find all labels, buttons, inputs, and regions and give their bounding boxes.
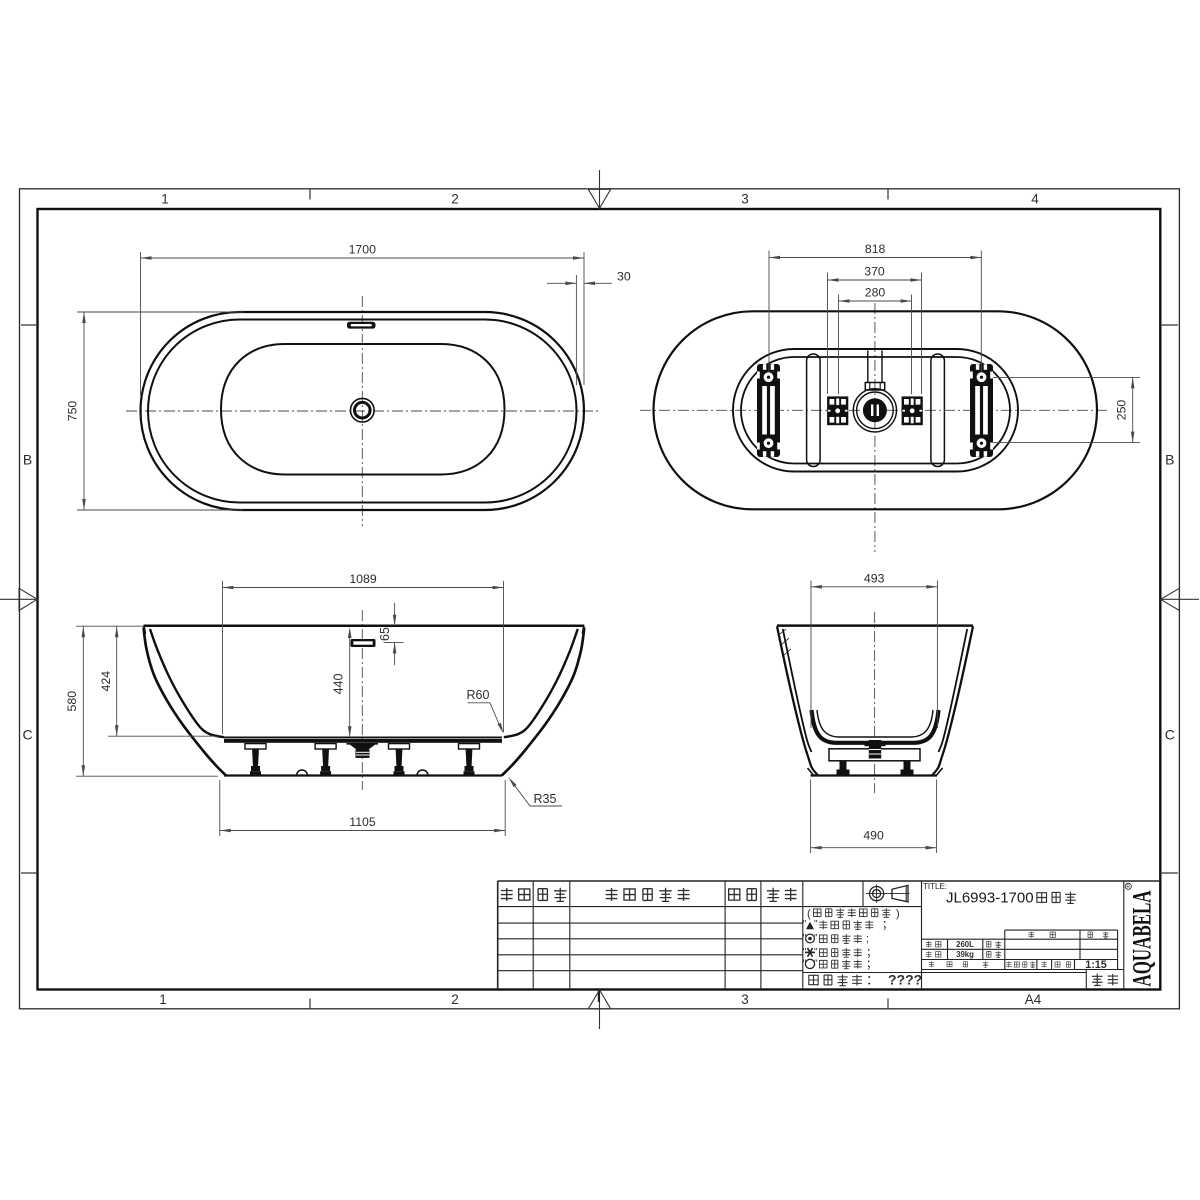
svg-text:C: C [22, 727, 32, 743]
svg-text:B: B [1165, 452, 1174, 468]
svg-text:370: 370 [864, 265, 885, 279]
svg-text:750: 750 [66, 401, 80, 422]
svg-text:": " [803, 947, 807, 958]
svg-text:1105: 1105 [349, 815, 376, 829]
svg-text:280: 280 [865, 286, 886, 300]
svg-text:424: 424 [99, 671, 113, 692]
svg-text:1089: 1089 [349, 572, 377, 586]
svg-text:30: 30 [617, 269, 631, 283]
svg-text:": " [814, 919, 818, 930]
svg-text:：: ： [866, 973, 879, 988]
svg-text:1: 1 [159, 992, 167, 1007]
svg-text:AQUABELA: AQUABELA [1128, 890, 1157, 986]
svg-text:): ) [896, 908, 900, 920]
svg-text:65: 65 [378, 627, 392, 641]
svg-text:818: 818 [865, 242, 886, 256]
svg-text:": " [803, 933, 807, 944]
svg-text:250: 250 [1115, 400, 1129, 421]
svg-text:39kg: 39kg [956, 950, 974, 959]
svg-text:????: ???? [888, 972, 922, 988]
svg-text:R35: R35 [534, 792, 557, 806]
svg-text:；: ； [882, 919, 893, 931]
svg-text:3: 3 [741, 992, 749, 1007]
svg-text:;: ; [866, 933, 869, 945]
svg-text:2: 2 [451, 992, 459, 1007]
svg-text:580: 580 [65, 691, 79, 712]
svg-text:(: ( [807, 908, 811, 920]
svg-text:": " [814, 933, 818, 944]
svg-text:1:15: 1:15 [1085, 959, 1107, 971]
svg-text:；: ； [866, 958, 877, 970]
svg-text:3: 3 [741, 192, 749, 207]
svg-text:B: B [23, 452, 32, 468]
svg-text:": " [803, 958, 807, 969]
svg-text:TITLE:: TITLE: [923, 882, 947, 891]
svg-text:JL6993-1700: JL6993-1700 [946, 890, 1034, 907]
svg-text:4: 4 [1031, 192, 1039, 207]
svg-text:R: R [1126, 884, 1130, 890]
svg-text:440: 440 [332, 674, 346, 695]
svg-text:C: C [1165, 727, 1175, 743]
svg-text:；: ； [866, 947, 877, 959]
svg-text:490: 490 [863, 829, 884, 843]
svg-text:A4: A4 [1025, 992, 1042, 1007]
svg-text:R60: R60 [467, 688, 490, 702]
svg-text:": " [803, 919, 807, 930]
svg-text:1: 1 [161, 192, 169, 207]
svg-text:493: 493 [864, 571, 885, 585]
svg-text:1700: 1700 [349, 243, 377, 257]
svg-text:2: 2 [451, 192, 459, 207]
svg-text:": " [814, 947, 818, 958]
svg-text:": " [814, 958, 818, 969]
svg-text:260L: 260L [956, 940, 974, 949]
